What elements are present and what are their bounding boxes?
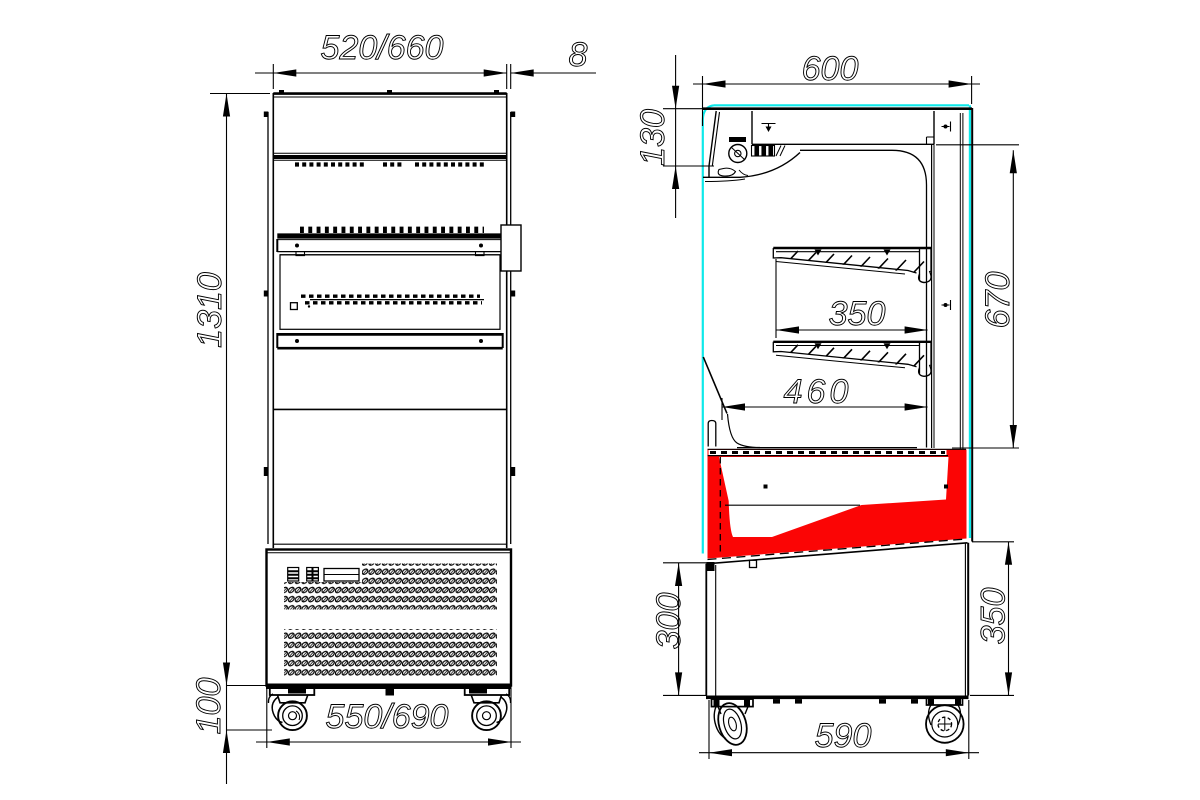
svg-text:550/690: 550/690 [326, 698, 449, 736]
svg-text:520/660: 520/660 [321, 29, 444, 67]
svg-text:1310: 1310 [191, 272, 229, 348]
svg-text:8: 8 [569, 36, 588, 74]
svg-text:670: 670 [979, 272, 1017, 329]
svg-text:590: 590 [815, 717, 872, 755]
svg-text:130: 130 [634, 109, 672, 166]
svg-text:100: 100 [190, 678, 228, 735]
svg-text:460: 460 [784, 373, 853, 411]
svg-text:350: 350 [975, 588, 1013, 645]
svg-text:300: 300 [650, 593, 688, 650]
svg-text:600: 600 [802, 50, 859, 88]
svg-text:350: 350 [829, 295, 886, 333]
